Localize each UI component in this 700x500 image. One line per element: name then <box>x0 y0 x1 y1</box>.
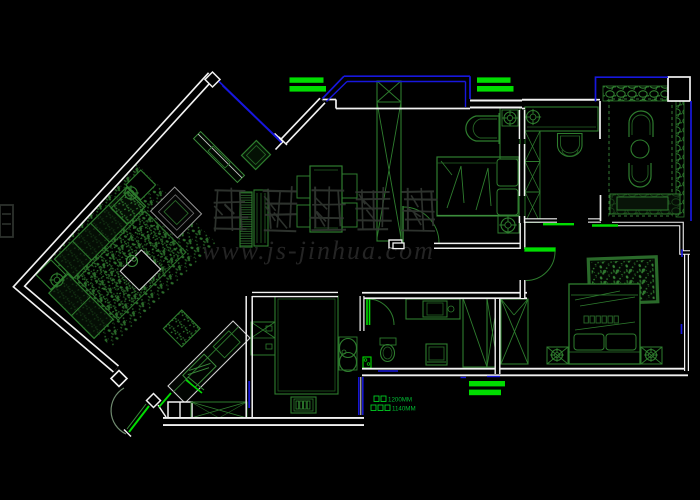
svg-text:www.js-jinhua.com: www.js-jinhua.com <box>202 236 435 265</box>
svg-text:1140MM: 1140MM <box>392 406 416 413</box>
svg-text:1200MM: 1200MM <box>388 397 412 404</box>
